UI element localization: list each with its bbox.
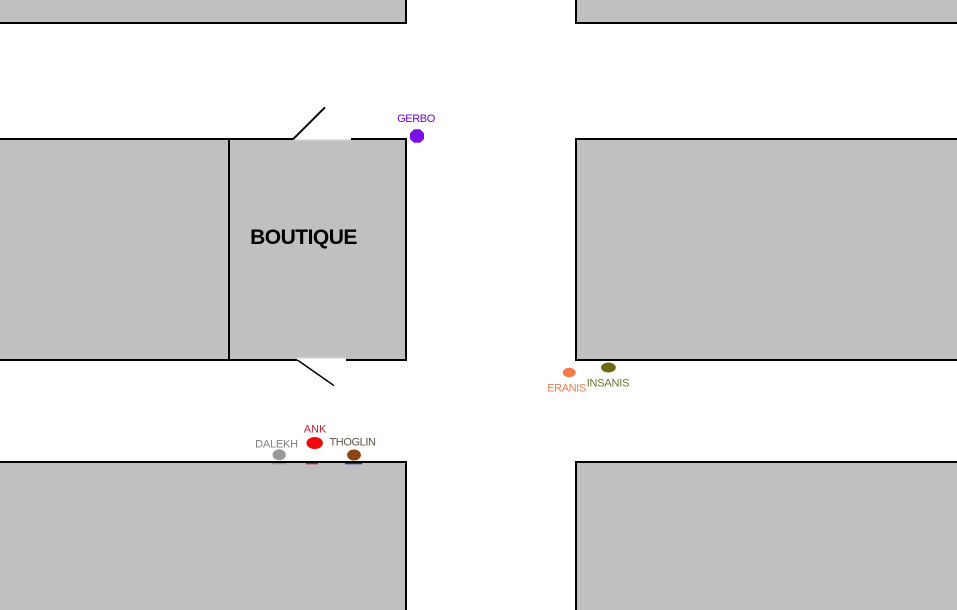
svg-text:ERANIS: ERANIS [547, 383, 586, 395]
svg-text:GERBO: GERBO [397, 113, 436, 125]
svg-text:THOGLIN: THOGLIN [329, 437, 376, 449]
svg-text:ANK: ANK [304, 424, 327, 436]
svg-text:DALEKH: DALEKH [255, 439, 298, 451]
svg-text:INSANIS: INSANIS [587, 378, 630, 390]
svg-text:BOUTIQUE: BOUTIQUE [250, 226, 357, 249]
